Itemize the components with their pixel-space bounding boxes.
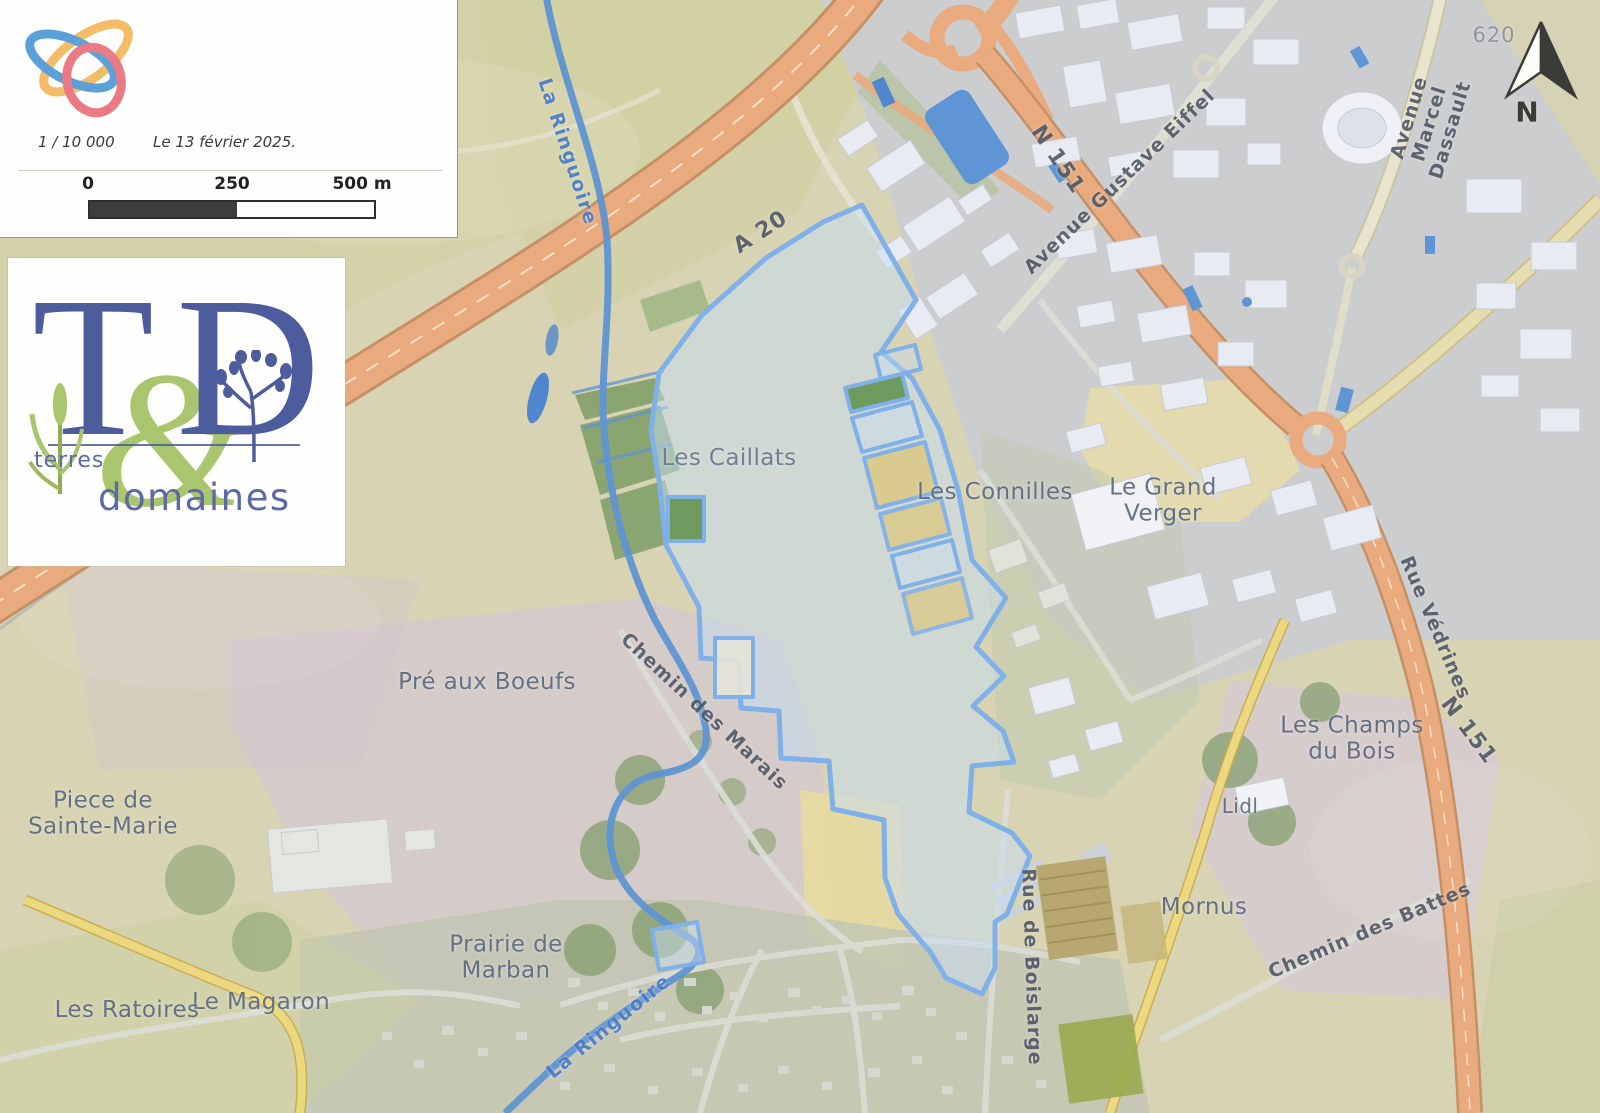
terres-et-domaines-logo: & T D terres domaines (8, 258, 345, 566)
scale-bar-filled-segment (90, 202, 237, 217)
scale-bar (88, 200, 376, 219)
scalebar-tick-250: 250 (214, 174, 250, 194)
map-canvas: 1 / 10 000 Le 13 février 2025. 0 250 500… (0, 0, 1600, 1113)
info-panel-divider (18, 170, 442, 171)
tree-branch-icon (208, 350, 303, 465)
terres-domaines-rings-icon (10, 6, 160, 131)
north-arrow-icon (1500, 16, 1580, 104)
logo-word-terres: terres (34, 448, 104, 473)
logo-word-domaines: domaines (98, 476, 291, 519)
scalebar-tick-0: 0 (82, 174, 94, 194)
cattail-reed-icon (22, 374, 97, 499)
map-date-text: Le 13 février 2025. (153, 133, 296, 151)
map-info-panel: 1 / 10 000 Le 13 février 2025. 0 250 500… (0, 0, 458, 238)
map-scale-text: 1 / 10 000 (38, 133, 115, 151)
scalebar-tick-500m: 500 m (332, 174, 391, 194)
